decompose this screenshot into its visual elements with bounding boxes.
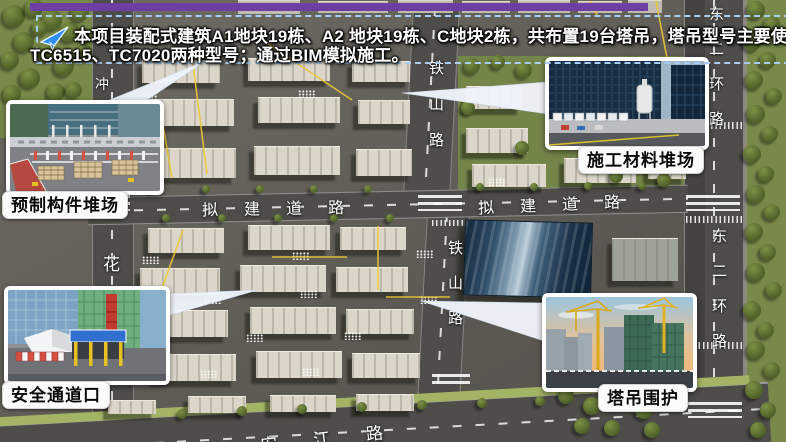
callout-leader-wedge [100, 60, 207, 104]
site-annotation-line [193, 64, 207, 174]
callout-label-precast: 预制构件堆场 [2, 191, 128, 219]
slide-canvas: 铁山路 铁山路 东二环路 东二环路 拟建道路 拟建道路 冲 花 安江路 [0, 0, 786, 442]
callout-leader-wedge [421, 301, 544, 341]
banner-text-line2: TC6515、TC7020两种型号；通过BIM模拟施工。 [30, 41, 409, 66]
callout-label-safety: 安全通道口 [2, 381, 110, 409]
callout-leader-wedge [402, 82, 548, 114]
accent-bar [30, 3, 648, 11]
callout-leader-wedge [160, 290, 258, 318]
crane-fence-photo [546, 297, 693, 388]
material-yard-photo [549, 61, 705, 146]
inset-photo-crane-fence [542, 293, 697, 392]
callout-label-crane: 塔吊围护 [598, 384, 688, 412]
inset-photo-precast-yard [6, 100, 164, 195]
inset-photo-safety-gate [4, 286, 170, 385]
precast-yard-photo [10, 104, 160, 191]
inset-photo-material-yard [545, 57, 709, 150]
callout-label-material: 施工材料堆场 [578, 146, 704, 174]
safety-gate-photo [8, 290, 166, 381]
